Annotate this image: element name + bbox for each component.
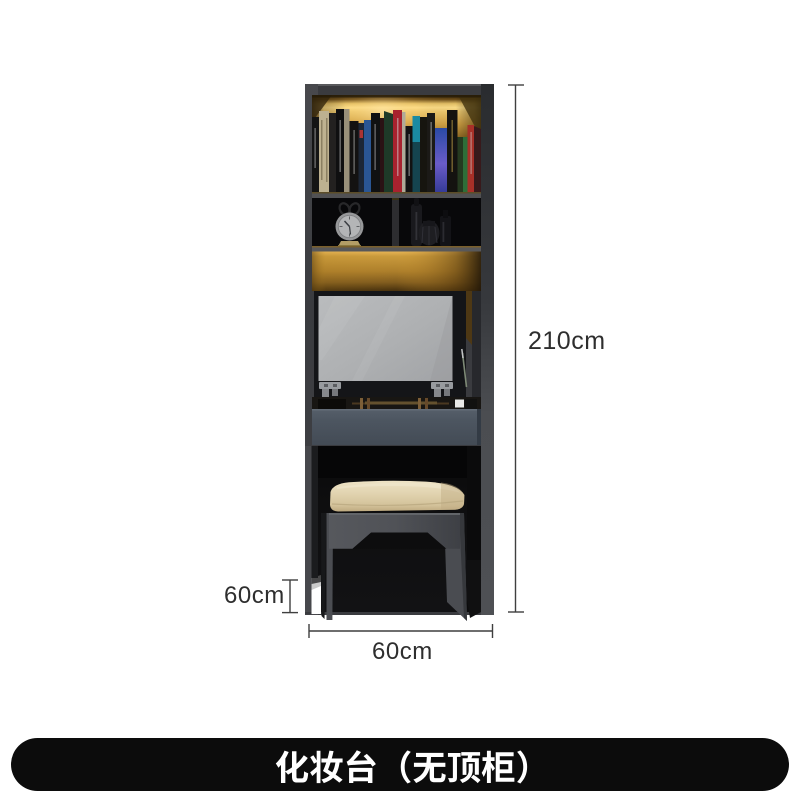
- svg-text:60cm: 60cm: [224, 582, 285, 609]
- svg-text:210cm: 210cm: [528, 327, 606, 355]
- svg-text:60cm: 60cm: [372, 638, 433, 665]
